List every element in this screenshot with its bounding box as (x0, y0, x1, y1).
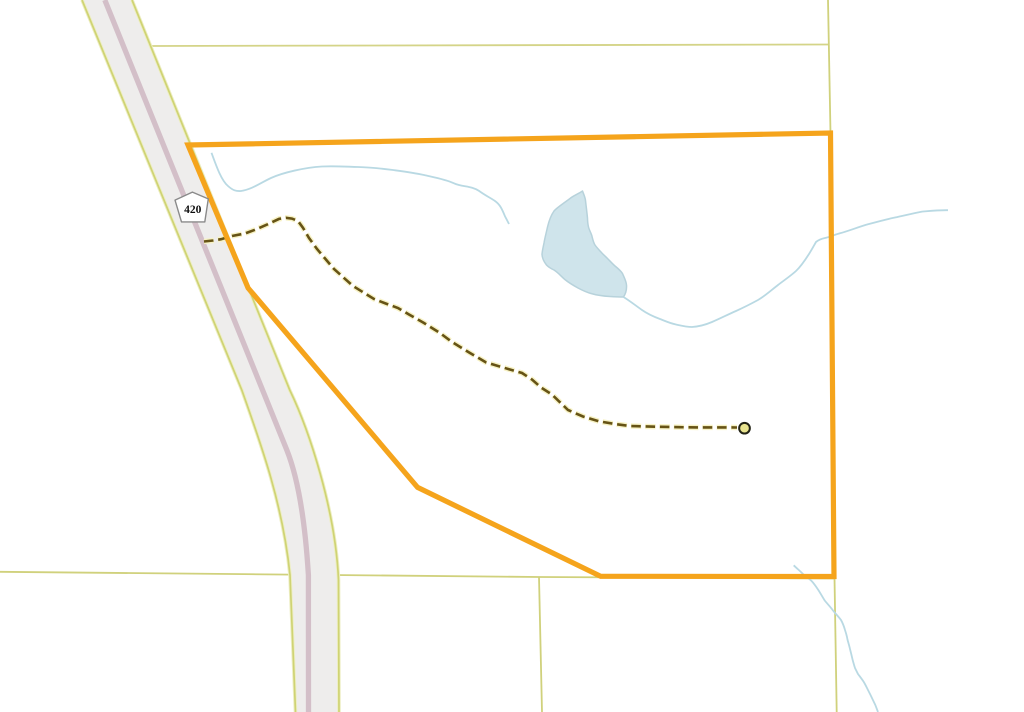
svg-text:420: 420 (184, 204, 202, 216)
